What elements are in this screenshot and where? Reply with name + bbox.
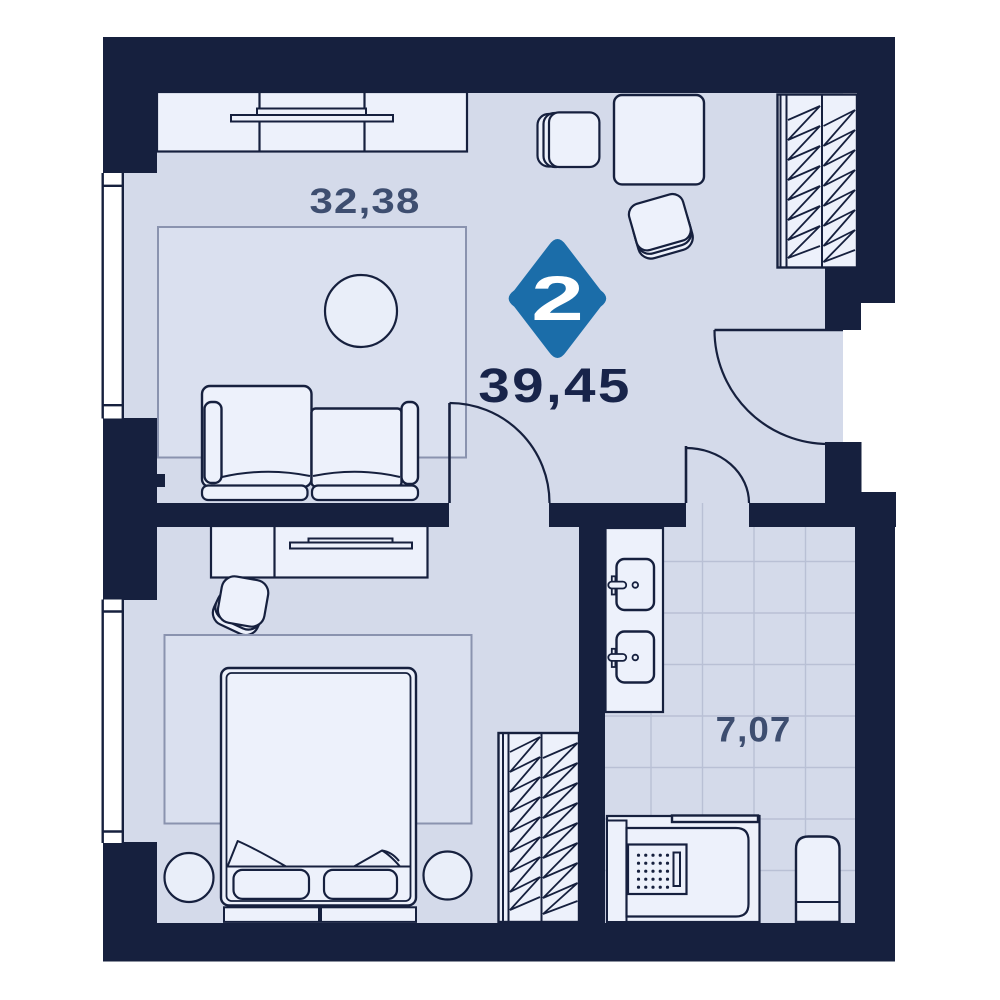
svg-text:39,45: 39,45	[478, 359, 632, 413]
svg-text:7,07: 7,07	[716, 710, 792, 749]
svg-text:32,38: 32,38	[309, 182, 420, 221]
svg-text:2: 2	[531, 264, 584, 335]
